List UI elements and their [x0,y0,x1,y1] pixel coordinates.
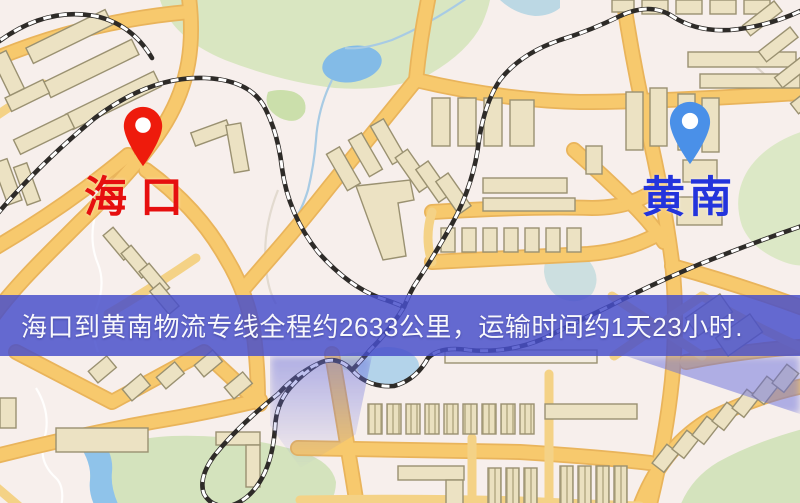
route-info-banner: 海口到黄南物流专线全程约2633公里，运输时间约1天23小时. [0,295,800,356]
map-container[interactable]: 海口 黄南 海口到黄南物流专线全程约2633公里，运输时间约1天23小时. [0,0,800,503]
red-pin-icon [124,107,162,166]
origin-pin-marker[interactable] [122,104,164,169]
route-info-text: 海口到黄南物流专线全程约2633公里，运输时间约1天23小时. [21,307,743,344]
map-canvas [0,0,800,503]
pin-hole [682,113,698,129]
origin-city-label: 海口 [84,177,196,220]
destination-pin-marker[interactable] [668,100,712,166]
pin-hole [135,117,151,133]
blue-pin-icon [670,102,710,164]
destination-city-label: 黄南 [642,177,736,220]
